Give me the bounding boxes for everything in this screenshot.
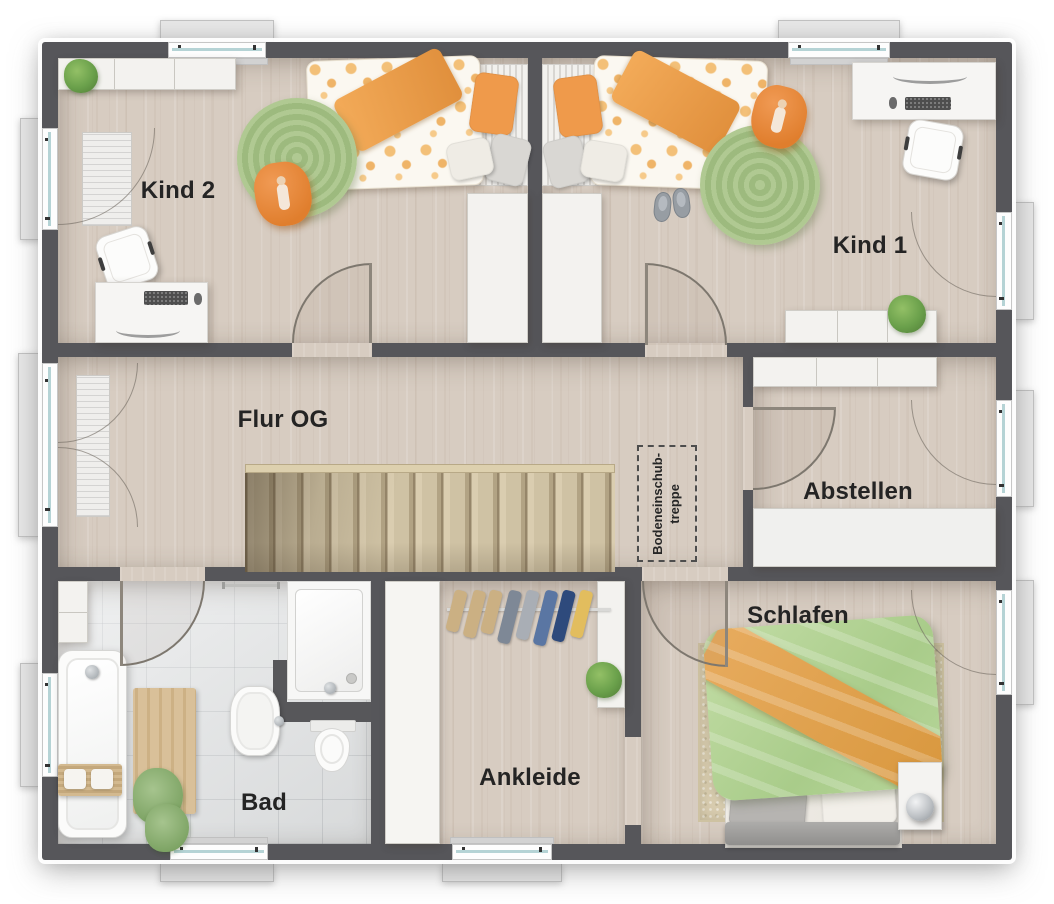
window-bad-left — [42, 673, 58, 777]
window-kind2-left — [42, 128, 58, 230]
window-sill — [160, 862, 274, 882]
window-glass — [1002, 594, 1005, 691]
window-glass — [1002, 216, 1005, 306]
bath-cabinet — [58, 581, 88, 643]
towel-bar — [222, 584, 280, 587]
plant-icon — [586, 662, 622, 698]
window-kind2-top — [168, 42, 266, 58]
door-opening-bad — [120, 567, 205, 581]
room-label-kind1: Kind 1 — [833, 232, 908, 260]
room-label-kind2: Kind 2 — [141, 177, 216, 205]
window-glass — [172, 48, 262, 51]
window-sill — [1012, 390, 1034, 507]
window-bad-bottom — [170, 844, 268, 860]
divider-line — [877, 358, 878, 386]
window-flur-left — [42, 363, 58, 527]
window-schlafen-right — [996, 590, 1012, 695]
window-sill — [1012, 202, 1034, 320]
plant-icon — [888, 295, 926, 333]
monitor-icon — [116, 323, 180, 338]
wall-cabinets — [753, 357, 937, 387]
room-label-bad: Bad — [241, 789, 287, 817]
floor-plan: Bodeneinschub- treppe — [0, 0, 1054, 904]
window-glass — [456, 850, 548, 853]
door-opening-kind1 — [645, 343, 727, 357]
door-leaf — [725, 581, 728, 667]
sink — [230, 686, 280, 756]
toilet — [310, 720, 354, 772]
wardrobe-kind2 — [467, 193, 528, 343]
window-glass — [792, 48, 886, 51]
door-leaf — [369, 263, 372, 343]
room-label-schlafen: Schlafen — [747, 602, 849, 630]
window-kind1-right — [996, 212, 1012, 310]
room-label-flur-og: Flur OG — [238, 406, 329, 434]
vanity-partition — [273, 702, 371, 722]
monitor-icon — [893, 69, 967, 84]
window-glass — [1002, 404, 1005, 493]
pillow — [552, 73, 604, 139]
window-sill — [1012, 580, 1034, 705]
chair-armrest — [904, 136, 910, 150]
loft-ladder-box: Bodeneinschub- treppe — [637, 445, 697, 562]
window-sill — [160, 20, 274, 42]
window-sill — [20, 663, 42, 787]
lamp-icon — [906, 793, 934, 821]
headboard — [725, 822, 900, 845]
desk-chair — [901, 118, 966, 183]
person-figure — [276, 184, 291, 211]
wardrobe-kind1 — [542, 193, 602, 343]
door-leaf — [645, 263, 648, 345]
towel-roll — [64, 769, 86, 789]
window-glass — [48, 367, 51, 523]
tub-faucet — [85, 665, 99, 679]
bath-caddy — [58, 764, 122, 796]
bathtub — [58, 650, 127, 838]
desk — [852, 62, 996, 120]
building-outline: Bodeneinschub- treppe — [42, 42, 1012, 860]
shower-faucet — [324, 682, 336, 694]
pillow — [579, 138, 629, 183]
door-opening-abstellen — [743, 407, 753, 490]
wardrobe-ankleide — [385, 581, 440, 844]
door-leaf — [120, 581, 123, 666]
mouse-icon — [889, 97, 897, 109]
sink-faucet — [274, 716, 284, 726]
towel-roll — [91, 769, 113, 789]
window-glass — [174, 850, 264, 853]
window-abstellen-right — [996, 400, 1012, 497]
door-opening-kind2 — [292, 343, 372, 357]
divider-line — [59, 612, 87, 613]
room-label-ankleide: Ankleide — [479, 764, 581, 792]
stair-handrail — [245, 464, 615, 473]
person-figure — [770, 106, 787, 134]
window-sill — [778, 20, 900, 42]
storage-shelf — [753, 508, 996, 567]
mouse-icon — [194, 293, 202, 305]
interior-sill — [450, 837, 554, 844]
divider-line — [816, 358, 817, 386]
window-glass — [48, 132, 51, 226]
window-ankleide-bottom — [452, 844, 552, 860]
door-opening-schlafen — [642, 567, 728, 581]
nightstand — [898, 762, 942, 830]
window-kind1-top — [788, 42, 890, 58]
window-sill — [20, 118, 42, 240]
divider-line — [114, 59, 115, 89]
divider-line — [174, 59, 175, 89]
pillow — [468, 71, 520, 137]
window-sill — [442, 862, 562, 882]
desk — [95, 282, 208, 343]
room-label-abstellen: Abstellen — [803, 478, 913, 506]
passage-ankleide-schlafen — [625, 737, 641, 825]
window-sill — [18, 353, 42, 537]
door-leaf — [753, 407, 836, 410]
keyboard-icon — [905, 97, 951, 110]
toilet-bowl — [314, 728, 350, 772]
plant-icon — [64, 59, 98, 93]
round-rug — [700, 125, 820, 245]
shower — [287, 581, 371, 700]
window-glass — [48, 677, 51, 773]
keyboard-icon — [144, 291, 188, 305]
loft-ladder-label: Bodeneinschub- treppe — [650, 453, 684, 555]
staircase — [245, 473, 615, 572]
divider-line — [837, 311, 838, 342]
